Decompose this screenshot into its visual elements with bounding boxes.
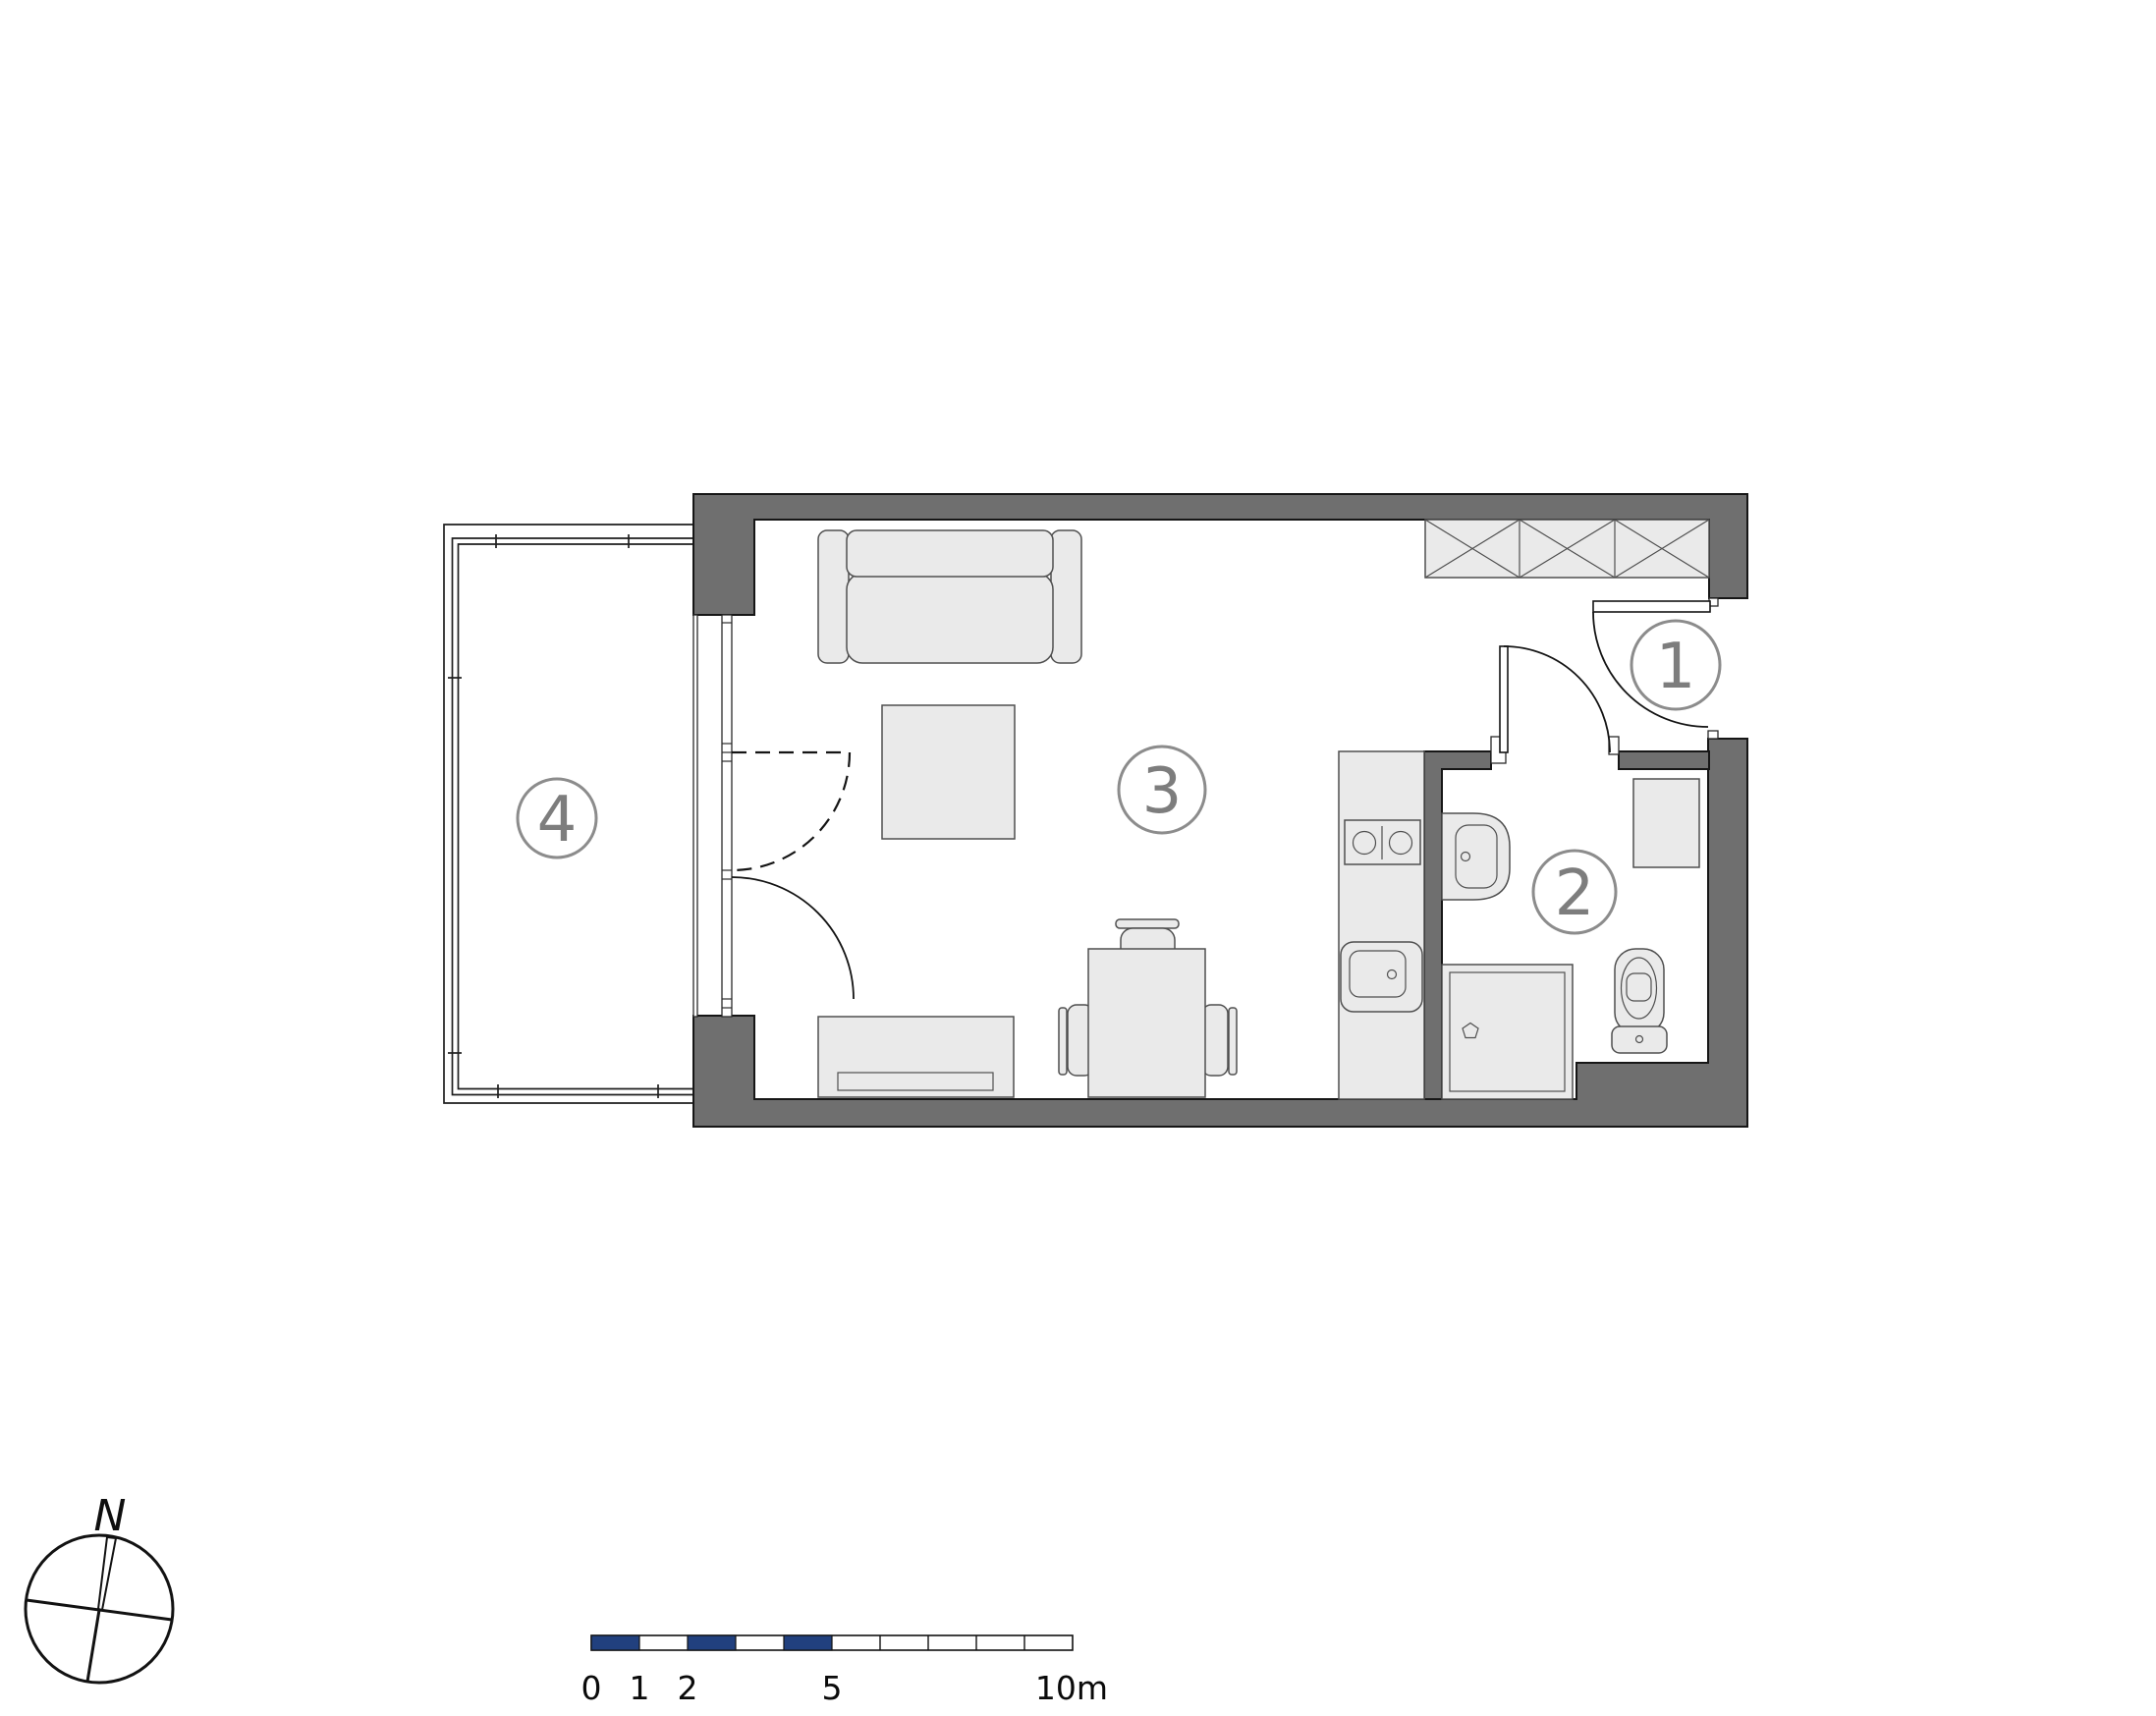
scale-label-2: 2 <box>678 1669 698 1707</box>
chair-seat-right <box>1202 1005 1228 1076</box>
kitchen-counter <box>1339 751 1424 1099</box>
scale-label-10m: 10m <box>1035 1669 1108 1707</box>
coffee-table <box>882 705 1015 839</box>
dining-set <box>1059 919 1237 1097</box>
toilet-tank <box>1612 1026 1667 1053</box>
entry-door-leaf <box>1593 601 1710 612</box>
kitchenette <box>1339 751 1424 1099</box>
scale-label-1: 1 <box>630 1669 650 1707</box>
sofa <box>818 530 1081 663</box>
wardrobe <box>1425 520 1709 578</box>
bathroom-door <box>1500 646 1610 752</box>
sofa-armrest-left <box>818 530 849 663</box>
north-compass: N <box>26 1491 173 1683</box>
floor-plan-page: 1 2 3 4 N 0 1 2 5 10m <box>0 0 2156 1716</box>
entry-door-jamb-bottom <box>1708 731 1718 739</box>
bathroom-partition-right <box>1619 751 1709 769</box>
chair-backrest-top <box>1116 919 1179 928</box>
window-outer-frame-line <box>693 615 697 1017</box>
balcony-door-swing-arc <box>732 877 854 999</box>
compass-north-label: N <box>94 1491 127 1541</box>
bathroom-door-leaf <box>1500 646 1508 752</box>
dining-table <box>1088 949 1205 1097</box>
chair-backrest-right <box>1229 1008 1237 1075</box>
bathroom-fixtures <box>1442 779 1699 1099</box>
bathroom-door-swing-arc <box>1504 646 1610 752</box>
scale-segment-4-5 <box>784 1635 832 1650</box>
sideboard-body <box>818 1017 1014 1097</box>
sideboard <box>818 1017 1014 1097</box>
room-3-number: 3 <box>1142 755 1183 828</box>
balcony-window-assembly <box>693 615 854 1017</box>
washbasin <box>1442 813 1510 900</box>
window-inner-frame <box>722 615 732 1017</box>
compass-north-needle <box>98 1537 116 1610</box>
chair-backrest-left <box>1059 1008 1067 1075</box>
kitchen-sink <box>1341 942 1422 1012</box>
scale-label-0: 0 <box>581 1669 602 1707</box>
scale-bar: 0 1 2 5 10m <box>581 1635 1109 1707</box>
sofa-seat <box>847 574 1053 663</box>
room-2-number: 2 <box>1555 858 1595 930</box>
scale-segment-2-3 <box>688 1635 736 1650</box>
room-1-number: 1 <box>1656 631 1696 703</box>
floor-plan-canvas: 1 2 3 4 N 0 1 2 5 10m <box>0 0 2156 1716</box>
balcony-door-inactive-swing-arc <box>732 752 850 870</box>
sofa-armrest-right <box>1051 530 1081 663</box>
sofa-backrest <box>847 530 1053 577</box>
scale-label-5: 5 <box>822 1669 843 1707</box>
room-4-number: 4 <box>537 784 578 857</box>
scale-segment-0-1 <box>591 1635 639 1650</box>
washing-machine <box>1633 779 1699 867</box>
shower-tray <box>1442 965 1573 1099</box>
